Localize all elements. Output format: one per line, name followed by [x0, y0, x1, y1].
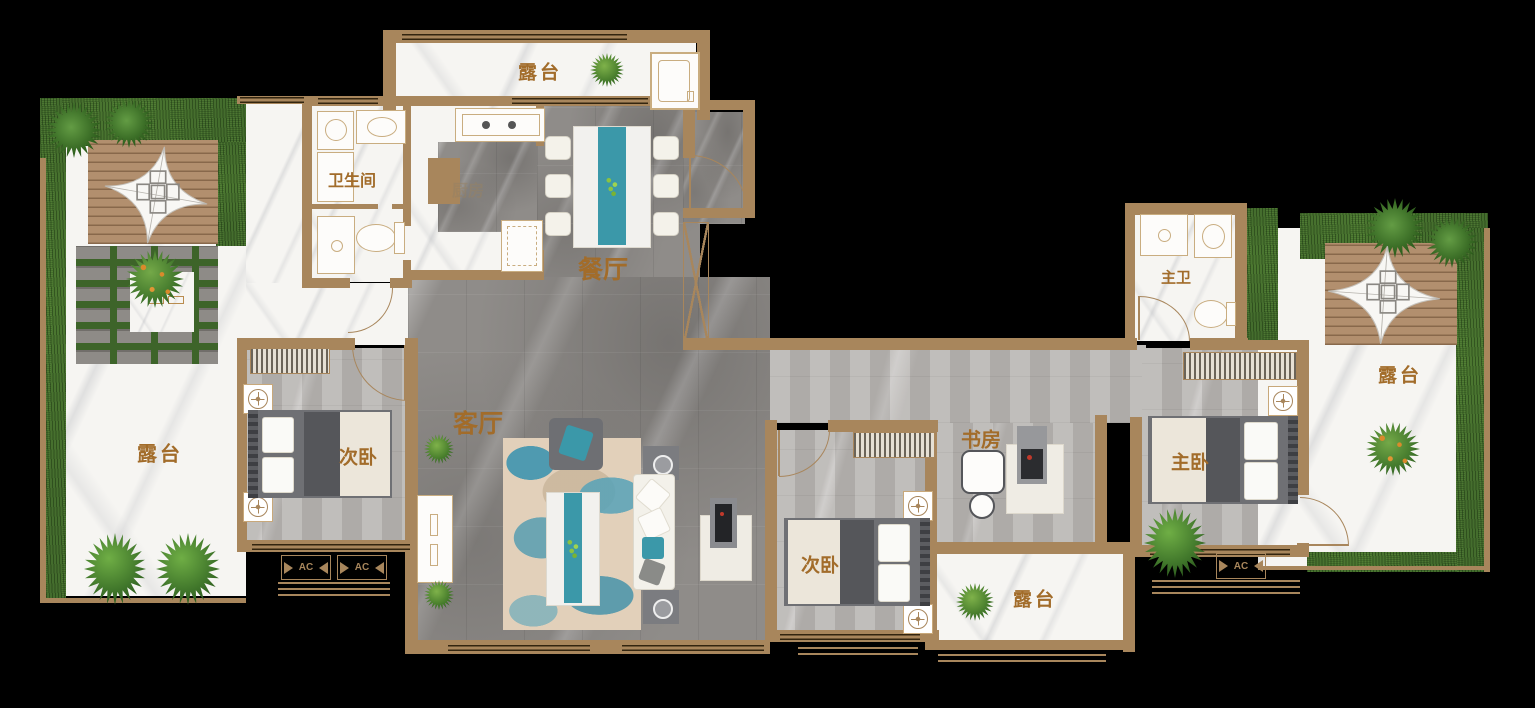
patio-table-set — [136, 170, 180, 214]
wall — [1297, 343, 1309, 495]
nightstand — [1268, 386, 1298, 416]
window-lines — [402, 32, 627, 40]
window-lines — [240, 97, 304, 103]
wall — [1484, 228, 1490, 572]
living-label: 客厅 — [453, 404, 503, 440]
dining-chair — [653, 174, 679, 198]
window-lines — [780, 632, 920, 640]
dining-chair — [545, 212, 571, 236]
armchair-pillow — [558, 424, 594, 461]
plant — [956, 583, 994, 621]
sink-basin — [1202, 224, 1225, 249]
sink-bowl — [462, 114, 540, 136]
dining-table — [573, 126, 651, 248]
coffee-table — [546, 492, 600, 606]
sofa-pillow-teal — [642, 537, 664, 559]
terrace-right-label: 露台 — [1378, 361, 1422, 388]
wall — [925, 542, 1125, 554]
light-well-shaft — [683, 222, 709, 344]
wardrobe-bedroom-mid — [853, 432, 935, 458]
patio-table-set — [1366, 270, 1410, 314]
study-label: 书房 — [961, 424, 1001, 453]
bush — [84, 533, 146, 605]
bathroom-label: 卫生间 — [328, 167, 376, 191]
monitor-led — [1027, 455, 1032, 460]
ac-label: AC — [299, 562, 313, 573]
faucet-dot — [508, 121, 516, 129]
tv-unit — [710, 498, 737, 548]
flower-bush — [126, 250, 184, 308]
dining-set — [545, 126, 677, 246]
bench-icon — [168, 296, 184, 304]
floor-plan: AC AC AC — [0, 0, 1535, 708]
bathroom-sink — [356, 110, 406, 144]
wall — [1123, 542, 1135, 652]
wall — [302, 278, 350, 288]
nightstand — [903, 491, 933, 521]
window-lines — [252, 542, 410, 550]
washer-knob — [687, 91, 694, 102]
railing — [1152, 580, 1300, 594]
corridor-floor — [770, 345, 1146, 423]
wall — [828, 420, 938, 432]
armchair — [549, 418, 603, 470]
wall — [302, 96, 312, 288]
master-bath-door-leaf — [1138, 296, 1140, 340]
wardrobe-master — [1183, 352, 1297, 380]
plant — [424, 580, 454, 610]
wall — [40, 598, 246, 603]
counter-inner — [507, 226, 537, 266]
sofa-pillow-gray — [638, 558, 666, 586]
window-lines — [622, 643, 764, 651]
terrace-left-label: 露台 — [137, 438, 183, 467]
ac-unit: AC — [281, 555, 331, 580]
study-stool — [969, 493, 995, 519]
pillow — [262, 417, 294, 453]
master-shower — [1140, 214, 1188, 256]
washer-door — [658, 60, 690, 102]
wall — [1125, 203, 1135, 350]
ac-unit: AC — [1216, 553, 1266, 579]
master-toilet — [1194, 300, 1228, 328]
dining-chair — [653, 136, 679, 160]
master-terrace-door-leaf — [1300, 544, 1348, 546]
railing — [278, 580, 390, 596]
window-lines — [448, 643, 590, 651]
pillow — [878, 524, 910, 562]
railing — [798, 645, 918, 655]
ac-label: AC — [355, 562, 369, 573]
bed-throw — [840, 520, 874, 604]
plant — [590, 53, 624, 87]
pillow — [1244, 462, 1278, 500]
bush — [156, 533, 220, 605]
bedroom-left-door-leaf — [404, 345, 406, 400]
shower-drain — [331, 240, 343, 252]
pillow — [1244, 422, 1278, 460]
terrace-top-label: 露台 — [518, 58, 562, 85]
sofa — [633, 474, 675, 590]
master-bedroom-label: 主卧 — [1171, 448, 1209, 475]
desk-cabinet — [1017, 426, 1047, 484]
palm-tree — [46, 102, 102, 158]
wall — [683, 338, 1137, 350]
bedroom-mid-label: 次卧 — [801, 551, 839, 578]
master-toilet-tank — [1226, 302, 1236, 326]
bedroom-mid-door-leaf — [778, 430, 780, 476]
toilet-tank — [394, 222, 405, 254]
headboard — [920, 518, 930, 606]
grass-left-right-strip — [216, 142, 246, 246]
toilet — [356, 224, 396, 252]
bed-throw — [1206, 418, 1240, 502]
nightstand — [903, 604, 933, 634]
tv-led — [720, 512, 724, 516]
headboard — [1288, 416, 1298, 504]
wall — [310, 204, 378, 209]
shower — [317, 216, 355, 274]
dining-chair — [545, 174, 571, 198]
sink-basin — [367, 117, 397, 137]
study-chair — [961, 450, 1005, 494]
wall — [765, 420, 777, 642]
bedroom-left-label: 次卧 — [339, 443, 377, 470]
grass-master-bath-side — [1242, 208, 1278, 346]
entry-door-leaf — [689, 155, 691, 212]
table-centerpiece — [604, 175, 620, 199]
master-bath-label: 主卫 — [1161, 267, 1191, 288]
side-table-ring — [653, 455, 673, 475]
washing-machine — [650, 52, 700, 110]
wall — [697, 100, 755, 110]
desk-monitor — [1021, 449, 1043, 479]
ac-label: AC — [1234, 561, 1248, 572]
master-sink — [1194, 214, 1232, 258]
wall — [392, 204, 410, 209]
headboard — [248, 410, 258, 498]
window-lines — [318, 97, 378, 104]
pillow — [262, 457, 294, 493]
dining-chair — [545, 136, 571, 160]
wall — [1258, 566, 1488, 570]
cabinet-handle — [430, 514, 438, 536]
railing — [938, 652, 1106, 662]
cabinet-handle — [430, 544, 438, 566]
pillow — [878, 564, 910, 602]
wardrobe-bedroom-left — [250, 348, 330, 374]
bed-throw — [304, 412, 340, 496]
coffee-table-deco — [565, 537, 581, 561]
kitchen-counter — [501, 220, 543, 272]
wall — [925, 640, 1135, 650]
kitchen-label: 厨房 — [452, 177, 484, 201]
side-table-ring — [653, 599, 673, 619]
terrace-bottom-label: 露台 — [1013, 585, 1057, 612]
living-cabinet — [417, 495, 453, 583]
dining-label: 餐厅 — [578, 250, 628, 286]
wall — [1235, 203, 1247, 350]
flower-bush — [1366, 422, 1420, 476]
faucet-dot — [482, 121, 490, 129]
wall — [1095, 415, 1107, 554]
ac-unit: AC — [337, 555, 387, 580]
washer-bathroom — [317, 111, 354, 150]
bush — [1144, 508, 1206, 578]
side-table — [643, 590, 679, 624]
kitchen-sink — [455, 108, 545, 142]
tv-screen — [715, 504, 732, 542]
window-lines — [512, 97, 648, 104]
plant — [424, 434, 454, 464]
wall — [1130, 417, 1142, 557]
wall — [40, 158, 46, 602]
shower-head — [1158, 229, 1171, 242]
washer-drum — [325, 119, 347, 141]
dining-chair — [653, 212, 679, 236]
